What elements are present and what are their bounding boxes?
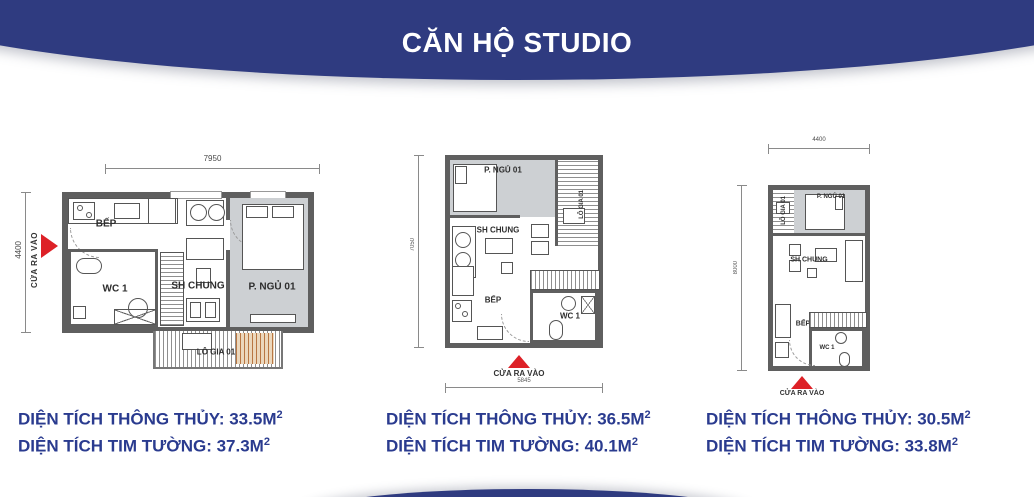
shower-drain — [73, 306, 86, 319]
side-table — [807, 268, 817, 278]
floor-plan-3: 4400 8000 LÔ GIA 01 P. NGỦ 01 SH CHUNG B… — [723, 136, 885, 398]
plan2-area-wall: DIỆN TÍCH TIM TƯỜNG: 40.1M2 — [386, 431, 651, 458]
toilet — [76, 258, 102, 274]
plan2-area-clear-text: DIỆN TÍCH THÔNG THỦY: 36.5M — [386, 410, 644, 429]
plan1-area-clear: DIỆN TÍCH THÔNG THỦY: 33.5M2 — [18, 404, 283, 431]
plan2-dimension-left: 7050 — [410, 238, 416, 251]
sup-2: 2 — [964, 409, 970, 421]
plan2-wc-label: WC 1 — [560, 312, 580, 321]
plan2-interior-wall — [450, 215, 520, 218]
kitchen-counter — [775, 304, 791, 338]
shower-box — [581, 296, 595, 314]
burner — [455, 303, 461, 309]
tv-cabinet — [531, 241, 549, 255]
plan1-balcony-label: LÔ GIA 01 — [197, 348, 235, 357]
floor-plan-2: 7050 P. NGỦ 01 LÔ GIA 01 SH CHUNG BẾP — [403, 138, 633, 395]
dining-chair — [789, 244, 801, 256]
cabinet — [148, 198, 176, 224]
toilet — [549, 320, 563, 340]
plan3-area-caption: DIỆN TÍCH THÔNG THỦY: 30.5M2 DIỆN TÍCH T… — [706, 404, 971, 457]
lounge-chair — [208, 204, 225, 221]
plan2-balcony-area — [558, 160, 598, 246]
burner — [462, 311, 468, 317]
plan1-dimension-line-left — [25, 192, 26, 333]
plan2-area-caption: DIỆN TÍCH THÔNG THỦY: 36.5M2 DIỆN TÍCH T… — [386, 404, 651, 457]
plan2-balcony-label: LÔ GIA 01 — [579, 190, 585, 219]
plan3-wc-label: WC 1 — [820, 345, 835, 351]
plan2-loggia-wall — [555, 160, 558, 246]
sup-2: 2 — [644, 409, 650, 421]
plan1-area-caption: DIỆN TÍCH THÔNG THỦY: 33.5M2 DIỆN TÍCH T… — [18, 404, 283, 457]
burner — [86, 212, 92, 218]
plan1-dimension-line-top — [105, 168, 320, 169]
plan1-entrance-arrow-icon — [41, 234, 58, 258]
plan2-area-wall-text: DIỆN TÍCH TIM TƯỜNG: 40.1M — [386, 436, 632, 455]
plan3-entrance-arrow-icon — [791, 376, 813, 389]
side-table — [501, 262, 513, 274]
plan1-living-label: SH CHUNG — [171, 281, 224, 292]
pillow — [455, 166, 467, 184]
toilet — [839, 352, 850, 367]
coffee-table — [485, 238, 513, 254]
plan1-kitchen-label: BẾP — [96, 219, 117, 230]
wardrobe-hatch — [530, 270, 600, 290]
plan2-entrance-arrow-icon — [508, 355, 530, 368]
sup-2: 2 — [632, 436, 638, 448]
balcony-deck — [236, 333, 274, 364]
plan3-living-label: SH CHUNG — [790, 257, 827, 264]
plan3-area-clear: DIỆN TÍCH THÔNG THỦY: 30.5M2 — [706, 404, 971, 431]
dining-chair — [190, 302, 201, 318]
ac-unit — [250, 314, 296, 323]
plan1-dimension-top: 7950 — [105, 154, 320, 163]
plan3-area-wall-text: DIỆN TÍCH TIM TƯỜNG: 33.8M — [706, 436, 952, 455]
plan1-bedroom-label: P. NGỦ 01 — [248, 282, 295, 293]
plan3-dimension-left: 8000 — [733, 261, 739, 274]
footer-banner-arc — [297, 489, 757, 497]
coffee-table — [186, 238, 224, 260]
wardrobe-hatch — [809, 312, 867, 328]
washer-box — [114, 309, 156, 325]
tv-cabinet — [531, 224, 549, 238]
kitchen-counter — [452, 266, 474, 296]
plan3-dimension-top: 4400 — [768, 137, 870, 143]
washbasin — [835, 332, 847, 344]
plan1-interior-wall — [226, 198, 230, 220]
plan1-wc-label: WC 1 — [103, 284, 128, 295]
stove — [775, 342, 789, 358]
plan2-dimension-line-left — [418, 155, 419, 348]
sup-2: 2 — [276, 409, 282, 421]
plan3-balcony-label: LÔ GIA 01 — [781, 196, 787, 225]
pillow — [272, 206, 294, 218]
floor-plan-sheet: CĂN HỘ STUDIO 7950 4400 CỬA RA VÀO P. NG… — [0, 0, 1034, 497]
burner — [77, 205, 83, 211]
plan2-living-label: SH CHUNG — [477, 226, 520, 235]
plan1-dimension-left: 4400 — [14, 241, 23, 259]
plan3-dimension-line-top — [768, 148, 870, 149]
plan3-entrance-label: CỬA RA VÀO — [767, 390, 837, 397]
plan3-area-wall: DIỆN TÍCH TIM TƯỜNG: 33.8M2 — [706, 431, 971, 458]
plan2-kitchen-label: BẾP — [485, 296, 501, 305]
pillow — [246, 206, 268, 218]
stove — [73, 202, 95, 220]
plan3-bedroom-label: P. NGỦ 01 — [817, 194, 845, 200]
page-title: CĂN HỘ STUDIO — [0, 27, 1034, 59]
sup-2: 2 — [952, 436, 958, 448]
plan1-area-wall-text: DIỆN TÍCH TIM TƯỜNG: 37.3M — [18, 436, 264, 455]
cabinet — [477, 326, 503, 340]
plan1-area-wall: DIỆN TÍCH TIM TƯỜNG: 37.3M2 — [18, 431, 283, 458]
sink — [114, 203, 140, 219]
plan2-entrance-label: CỬA RA VÀO — [479, 369, 559, 378]
plan2-dimension-line-bottom — [445, 387, 603, 388]
floor-plan-1: 7950 4400 CỬA RA VÀO P. NGỦ 01 BẾP WC 1 — [18, 146, 348, 398]
plan3-dimension-line-left — [741, 185, 742, 371]
lounge-chair — [455, 232, 471, 248]
plan2-area-clear: DIỆN TÍCH THÔNG THỦY: 36.5M2 — [386, 404, 651, 431]
dining-chair — [205, 302, 216, 318]
plan3-area-clear-text: DIỆN TÍCH THÔNG THỦY: 30.5M — [706, 410, 964, 429]
plan2-bedroom-label: P. NGỦ 01 — [484, 166, 522, 175]
lounge-chair — [190, 204, 207, 221]
plan1-entrance-label: CỬA RA VÀO — [30, 218, 39, 288]
washbasin — [561, 296, 576, 311]
plan1-interior-wall — [226, 250, 230, 327]
sofa — [845, 240, 863, 282]
plan1-area-clear-text: DIỆN TÍCH THÔNG THỦY: 33.5M — [18, 410, 276, 429]
plan3-interior-wall — [773, 233, 865, 236]
plan2-dimension-bottom: 5845 — [445, 378, 603, 384]
sup-2: 2 — [264, 436, 270, 448]
